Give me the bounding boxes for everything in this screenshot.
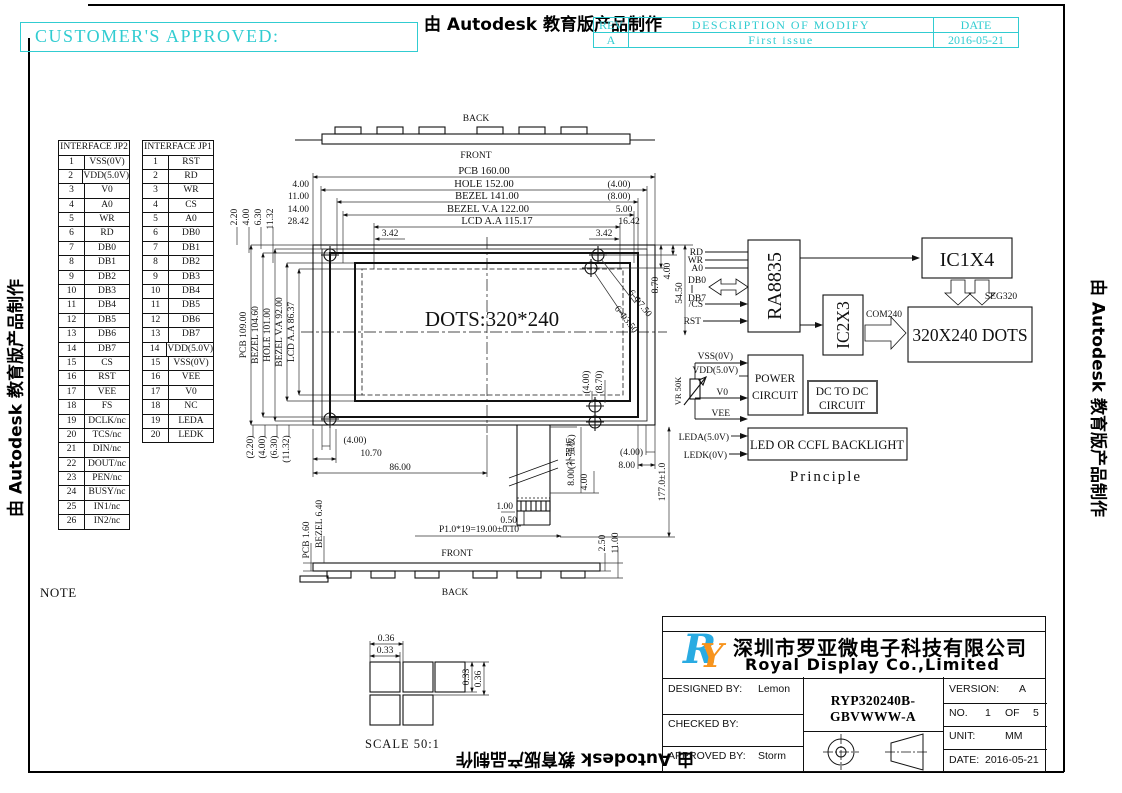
pin-name: DB1 bbox=[169, 242, 213, 255]
dim-label: (4.00) bbox=[608, 179, 631, 190]
pin-row: 19 DCLK/nc bbox=[59, 415, 129, 429]
table-title: INTERFACE JP1 bbox=[143, 141, 213, 156]
dim-label: 11.00 bbox=[611, 532, 621, 553]
dim-label: 54.50 bbox=[675, 282, 685, 304]
designed-by-label: DESIGNED BY: bbox=[668, 683, 742, 695]
projection-cone-icon bbox=[885, 734, 929, 770]
dim-label: 0.36 bbox=[378, 634, 395, 644]
sheet-of-label: OF bbox=[1005, 707, 1020, 719]
pin-row: 4 A0 bbox=[59, 199, 129, 213]
pin-number: 4 bbox=[59, 199, 85, 212]
divider bbox=[943, 726, 1047, 727]
pin-name: IN1/nc bbox=[85, 501, 129, 514]
front-label: FRONT bbox=[441, 549, 472, 559]
pin-row: 13 DB7 bbox=[143, 328, 213, 342]
dim-label: (4.00) bbox=[257, 436, 268, 459]
pin-number: 6 bbox=[143, 227, 169, 240]
dim-label: (2.20) bbox=[245, 436, 256, 459]
power-signal-label: VSS(0V) bbox=[698, 351, 733, 362]
pin-row: 18 FS bbox=[59, 400, 129, 414]
hole-callout-leaders bbox=[594, 259, 635, 315]
pin-row: 5 WR bbox=[59, 213, 129, 227]
sheet-no-value: 1 bbox=[985, 707, 991, 719]
pin-name: TCS/nc bbox=[85, 429, 129, 442]
divider bbox=[943, 677, 944, 771]
dim-label: (4.00) bbox=[581, 371, 592, 394]
pin-row: 5 A0 bbox=[143, 213, 213, 227]
pin-row: 1 RST bbox=[143, 156, 213, 170]
pin-number: 16 bbox=[143, 371, 169, 384]
divider bbox=[663, 714, 803, 715]
pin-row: 17 VEE bbox=[59, 386, 129, 400]
dim-label: 10.70 bbox=[360, 449, 382, 459]
dim-label: BEZEL 104.60 bbox=[251, 306, 261, 364]
autodesk-credit-right: 由 Autodesk 教育版产品制作 bbox=[1088, 279, 1113, 517]
backlight-label: LED OR CCFL BACKLIGHT bbox=[750, 438, 904, 452]
pin-number: 19 bbox=[59, 415, 85, 428]
pin-name: DB7 bbox=[85, 343, 129, 356]
pin-name: VEE bbox=[85, 386, 129, 399]
power-signal-label: VDD(5.0V) bbox=[692, 365, 738, 376]
pin-number: 2 bbox=[143, 170, 169, 183]
pin-name: DB3 bbox=[85, 285, 129, 298]
top-profile-view bbox=[295, 127, 655, 144]
dim-label: 16.42 bbox=[618, 217, 640, 227]
version-value: A bbox=[1019, 683, 1026, 695]
pin-name: RD bbox=[169, 170, 213, 183]
pin-name: FS bbox=[85, 400, 129, 413]
backlight-signal-label: LEDK(0V) bbox=[684, 450, 727, 461]
date-value: 2016-05-21 bbox=[934, 33, 1018, 47]
sheet-of-value: 5 bbox=[1033, 707, 1039, 719]
pin-name: DB3 bbox=[169, 271, 213, 284]
pin-name: DB1 bbox=[85, 256, 129, 269]
dim-label: BEZEL 6.40 bbox=[315, 500, 325, 548]
pin-name: VDD(5.0V) bbox=[83, 170, 129, 183]
dim-label: 2.50 bbox=[598, 534, 608, 551]
pin-name: CS bbox=[85, 357, 129, 370]
bottom-left-offsets bbox=[253, 425, 289, 437]
mounting-holes bbox=[321, 246, 607, 431]
pin-name: VDD(5.0V) bbox=[167, 343, 213, 356]
pin-name: V0 bbox=[85, 184, 129, 197]
pin-number: 7 bbox=[59, 242, 85, 255]
dim-label: 3.42 bbox=[596, 229, 613, 239]
pin-row: 10 DB3 bbox=[59, 285, 129, 299]
scale-caption: SCALE 50:1 bbox=[365, 737, 440, 751]
notes-lines bbox=[40, 629, 77, 672]
pin-name: VEE bbox=[169, 371, 213, 384]
pin-row: 2 RD bbox=[143, 170, 213, 184]
power-circuit-label: POWER bbox=[755, 373, 796, 385]
company-logo: R Y bbox=[683, 632, 731, 676]
pin-name: DB0 bbox=[85, 242, 129, 255]
title-block: R Y 深圳市罗亚微电子科技有限公司 Royal Display Co.,Lim… bbox=[662, 616, 1046, 772]
engineering-drawing-sheet: CUSTOMER'S APPROVED: 由 Autodesk 教育版产品制作 … bbox=[0, 0, 1122, 793]
pin-name: DB5 bbox=[169, 299, 213, 312]
date-header: DATE bbox=[934, 18, 1018, 32]
designed-by-value: Lemon bbox=[758, 683, 790, 695]
divider bbox=[663, 746, 803, 747]
dim-label: (8.00) bbox=[608, 191, 631, 202]
pin-name: IN2/nc bbox=[85, 515, 129, 528]
dim-label: 86.00 bbox=[389, 463, 411, 473]
pin-row: 6 DB0 bbox=[143, 227, 213, 241]
pin-number: 18 bbox=[143, 400, 169, 413]
backlight-signal-label: LEDA(5.0V) bbox=[679, 432, 729, 443]
pin-name: WR bbox=[85, 213, 129, 226]
pin-number: 10 bbox=[59, 285, 85, 298]
dim-label: LCD A.A 115.17 bbox=[461, 216, 532, 227]
pin-number: 25 bbox=[59, 501, 85, 514]
interface-jp2-rows: 1 VSS(0V) 2 VDD(5.0V) 3 V0 4 A0 5 WR 6 R… bbox=[59, 156, 129, 529]
sheet-no-label: NO. bbox=[949, 707, 968, 719]
dim-label: 4.00 bbox=[242, 208, 252, 225]
back-label: BACK bbox=[463, 114, 490, 124]
dim-label: 4.00 bbox=[292, 180, 309, 190]
divider bbox=[943, 749, 1047, 750]
dim-label: 4.00 bbox=[663, 262, 673, 279]
dim-label: 0.33 bbox=[462, 668, 472, 685]
pin-number: 2 bbox=[59, 170, 83, 183]
dcdc-label: CIRCUIT bbox=[819, 400, 865, 412]
dim-label: PCB 109.00 bbox=[239, 312, 249, 359]
dim-label: 2.20 bbox=[230, 208, 240, 225]
pin-number: 14 bbox=[59, 343, 85, 356]
pin-row: 4 CS bbox=[143, 199, 213, 213]
checked-by-label: CHECKED BY: bbox=[668, 718, 739, 730]
pin-row: 24 BUSY/nc bbox=[59, 486, 129, 500]
pin-name: A0 bbox=[169, 213, 213, 226]
pin-name: DB2 bbox=[169, 256, 213, 269]
autodesk-credit-left: 由 Autodesk 教育版产品制作 bbox=[2, 279, 27, 517]
pin-name: DB4 bbox=[169, 285, 213, 298]
pin-number: 15 bbox=[59, 357, 85, 370]
pin-name: LEDA bbox=[169, 415, 213, 428]
pin-row: 7 DB1 bbox=[143, 242, 213, 256]
dim-label: 3.42 bbox=[382, 229, 399, 239]
pin-number: 3 bbox=[143, 184, 169, 197]
pin-row: 10 DB4 bbox=[143, 285, 213, 299]
pin-number: 4 bbox=[143, 199, 169, 212]
pin-row: 3 V0 bbox=[59, 184, 129, 198]
frame-top bbox=[88, 4, 1063, 6]
signal-label: /CS bbox=[689, 300, 703, 310]
pin-number: 20 bbox=[59, 429, 85, 442]
pin-number: 1 bbox=[59, 156, 85, 169]
pin-row: 16 RST bbox=[59, 371, 129, 385]
dim-label: 8.70 bbox=[651, 276, 661, 293]
pin-row: 11 DB5 bbox=[143, 299, 213, 313]
logo-letter-y: Y bbox=[700, 636, 724, 675]
pin-number: 19 bbox=[143, 415, 169, 428]
pin-name: BUSY/nc bbox=[85, 486, 129, 499]
pin-name: NC bbox=[169, 400, 213, 413]
pin-row: 9 DB2 bbox=[59, 271, 129, 285]
signal-label: DB0 bbox=[688, 276, 706, 286]
dim-label: LCD A.A 86.37 bbox=[287, 302, 297, 362]
dim-label: (4.00) bbox=[620, 447, 643, 458]
dim-label: 11.32 bbox=[266, 208, 276, 229]
mounting-hole bbox=[586, 413, 604, 431]
pitch-label: P1.0*19=19.00±0.10 bbox=[439, 525, 519, 535]
pin-row: 1 VSS(0V) bbox=[59, 156, 129, 170]
interface-jp2-table: INTERFACE JP2 1 VSS(0V) 2 VDD(5.0V) 3 V0… bbox=[58, 140, 130, 530]
pin-number: 17 bbox=[143, 386, 169, 399]
dim-label: 4.00 bbox=[580, 473, 590, 490]
pin-name: DB6 bbox=[169, 314, 213, 327]
pin-number: 14 bbox=[143, 343, 167, 356]
revision-header-row: REV DESCRIPTION OF MODIFY DATE bbox=[594, 18, 1018, 33]
description-header: DESCRIPTION OF MODIFY bbox=[629, 18, 934, 32]
dots-resolution-label: DOTS:320*240 bbox=[425, 307, 559, 331]
bottom-profile-view bbox=[300, 563, 600, 582]
pin-row: 8 DB2 bbox=[143, 256, 213, 270]
pin-row: 12 DB5 bbox=[59, 314, 129, 328]
pin-number: 8 bbox=[59, 256, 85, 269]
pin-row: 18 NC bbox=[143, 400, 213, 414]
pin-name: DCLK/nc bbox=[85, 415, 129, 428]
pin-number: 5 bbox=[143, 213, 169, 226]
table-title: INTERFACE JP2 bbox=[59, 141, 129, 156]
data-bus-arrow bbox=[709, 279, 748, 295]
pin-name: WR bbox=[169, 184, 213, 197]
version-label: VERSION: bbox=[949, 683, 999, 695]
dim-label: 177.0±1.0 bbox=[658, 463, 668, 502]
pin-number: 3 bbox=[59, 184, 85, 197]
com-driver-label: IC2X3 bbox=[833, 301, 853, 349]
principle-caption: Principle bbox=[790, 469, 862, 485]
front-view-outline bbox=[301, 237, 667, 433]
dim-label: PCB 160.00 bbox=[458, 166, 509, 177]
power-circuit-box bbox=[748, 355, 803, 415]
pin-name: RST bbox=[169, 156, 213, 169]
dim-label: 0.33 bbox=[377, 646, 394, 656]
dim-label: HOLE 101.00 bbox=[263, 308, 273, 362]
pin-number: 23 bbox=[59, 472, 85, 485]
rev-header: REV bbox=[594, 18, 629, 32]
projection-circle-icon bbox=[823, 734, 859, 770]
projection-symbols bbox=[803, 731, 943, 773]
dim-label: (8.70) bbox=[594, 371, 605, 394]
pin-name: DOUT/nc bbox=[85, 458, 129, 471]
pin-name: DB0 bbox=[169, 227, 213, 240]
pin-number: 21 bbox=[59, 443, 85, 456]
pin-row: 26 IN2/nc bbox=[59, 515, 129, 528]
pin-name: DB7 bbox=[169, 328, 213, 341]
hole-callout: 6-Φ3.50 bbox=[612, 304, 639, 335]
signal-label: A0 bbox=[691, 264, 703, 274]
pin-row: 14 DB7 bbox=[59, 343, 129, 357]
pin-name: DB6 bbox=[85, 328, 129, 341]
vr-label: VR 50K bbox=[673, 376, 683, 405]
dim-label: BEZEL 141.00 bbox=[455, 191, 519, 202]
pin-name: RST bbox=[85, 371, 129, 384]
pin-row: 7 DB0 bbox=[59, 242, 129, 256]
ffc-tail bbox=[509, 425, 558, 525]
pin-name: VSS(0V) bbox=[85, 156, 129, 169]
pin-number: 9 bbox=[143, 271, 169, 284]
seg-bus-label: SEG320 bbox=[985, 292, 1017, 302]
pin-number: 11 bbox=[143, 299, 169, 312]
pin-row: 9 DB3 bbox=[143, 271, 213, 285]
pin-number: 12 bbox=[59, 314, 85, 327]
dim-label: (4.00) bbox=[344, 435, 367, 446]
divider bbox=[943, 703, 1047, 704]
panel-label: 320X240 DOTS bbox=[912, 325, 1027, 345]
dim-label: 8.00(补强板) bbox=[565, 434, 577, 485]
dim-label: (11.32) bbox=[281, 435, 292, 462]
pin-row: 11 DB4 bbox=[59, 299, 129, 313]
dim-label: 28.42 bbox=[288, 217, 310, 227]
pin-row: 17 V0 bbox=[143, 386, 213, 400]
com-bus-label: COM240 bbox=[866, 310, 902, 320]
pin-row: 14 VDD(5.0V) bbox=[143, 343, 213, 357]
pin-row: 15 CS bbox=[59, 357, 129, 371]
controller-label: RA8835 bbox=[764, 252, 786, 320]
dim-label: 14.00 bbox=[288, 205, 310, 215]
customer-approved-box: CUSTOMER'S APPROVED: bbox=[20, 22, 418, 52]
mounting-hole bbox=[586, 397, 604, 415]
bottom-right-dimensions bbox=[638, 425, 655, 469]
pin-name: DIN/nc bbox=[85, 443, 129, 456]
rev-value: A bbox=[594, 33, 629, 47]
dot-pitch-view bbox=[370, 662, 465, 725]
customer-approved-label: CUSTOMER'S APPROVED: bbox=[35, 26, 279, 46]
pin-name: DB4 bbox=[85, 299, 129, 312]
dim-label: (6.30) bbox=[269, 436, 280, 459]
pin-row: 22 DOUT/nc bbox=[59, 458, 129, 472]
company-name-en: Royal Display Co.,Limited bbox=[745, 655, 1000, 674]
pin-row: 23 PEN/nc bbox=[59, 472, 129, 486]
power-signal-label: V0 bbox=[716, 388, 728, 398]
pin-row: 19 LEDA bbox=[143, 415, 213, 429]
pin-name: A0 bbox=[85, 199, 129, 212]
pin-number: 11 bbox=[59, 299, 85, 312]
back-label: BACK bbox=[442, 588, 469, 598]
revision-table: REV DESCRIPTION OF MODIFY DATE A First i… bbox=[593, 17, 1019, 48]
pin-row: 3 WR bbox=[143, 184, 213, 198]
pin-name: VSS(0V) bbox=[169, 357, 213, 370]
pin-number: 10 bbox=[143, 285, 169, 298]
dim-label: 11.00 bbox=[288, 192, 309, 202]
pin-name: DB2 bbox=[85, 271, 129, 284]
pin-number: 5 bbox=[59, 213, 85, 226]
dim-label: BEZEL V.A 122.00 bbox=[447, 204, 529, 215]
pin-name: CS bbox=[169, 199, 213, 212]
pin-row: 6 RD bbox=[59, 227, 129, 241]
pin-number: 12 bbox=[143, 314, 169, 327]
pin-number: 13 bbox=[59, 328, 85, 341]
interface-jp1-table: INTERFACE JP1 1 RST 2 RD 3 WR 4 CS 5 A0 … bbox=[142, 140, 214, 443]
unit-value: MM bbox=[1005, 730, 1023, 742]
dim-label: 8.00 bbox=[618, 461, 635, 471]
pin-row: 8 DB1 bbox=[59, 256, 129, 270]
pin-number: 17 bbox=[59, 386, 85, 399]
model-number: RYP320240B-GBVWWW-A bbox=[803, 693, 943, 725]
dim-label: BEZEL V.A 92.00 bbox=[275, 297, 285, 367]
pin-number: 9 bbox=[59, 271, 85, 284]
pin-number: 20 bbox=[143, 429, 169, 442]
pin-name: V0 bbox=[169, 386, 213, 399]
dim-label: 0.36 bbox=[474, 670, 484, 687]
notes-title: NOTE bbox=[40, 586, 77, 600]
approved-by-label: APPROVED BY: bbox=[668, 750, 746, 762]
power-signal-label: VEE bbox=[712, 409, 731, 419]
pin-row: 12 DB6 bbox=[143, 314, 213, 328]
seg-driver-label: IC1X4 bbox=[940, 249, 994, 271]
pin-row: 15 VSS(0V) bbox=[143, 357, 213, 371]
pin-row: 13 DB6 bbox=[59, 328, 129, 342]
pin-number: 24 bbox=[59, 486, 85, 499]
dcdc-label: DC TO DC bbox=[816, 386, 869, 398]
pin-number: 16 bbox=[59, 371, 85, 384]
pin-number: 13 bbox=[143, 328, 169, 341]
interface-jp1-rows: 1 RST 2 RD 3 WR 4 CS 5 A0 6 DB0 7 DB1 8 bbox=[143, 156, 213, 443]
notes-block: NOTE bbox=[40, 557, 77, 701]
pin-number: 22 bbox=[59, 458, 85, 471]
pin-row: 25 IN1/nc bbox=[59, 501, 129, 515]
signal-label: RST bbox=[684, 317, 702, 327]
unit-label: UNIT: bbox=[949, 730, 975, 742]
pin-name: DB5 bbox=[85, 314, 129, 327]
pin-number: 15 bbox=[143, 357, 169, 370]
dim-label: 1.00 bbox=[496, 502, 513, 512]
dim-label: 5.00 bbox=[616, 205, 633, 215]
dim-label: PCB 1.60 bbox=[302, 521, 312, 558]
pin-row: 20 LEDK bbox=[143, 429, 213, 442]
pin-number: 7 bbox=[143, 242, 169, 255]
pin-number: 8 bbox=[143, 256, 169, 269]
dim-label: HOLE 152.00 bbox=[454, 179, 514, 190]
front-label: FRONT bbox=[460, 151, 491, 161]
pin-row: 2 VDD(5.0V) bbox=[59, 170, 129, 184]
pin-row: 16 VEE bbox=[143, 371, 213, 385]
company-header: R Y 深圳市罗亚微电子科技有限公司 Royal Display Co.,Lim… bbox=[663, 631, 1045, 679]
pin-name: PEN/nc bbox=[85, 472, 129, 485]
pin-name: RD bbox=[85, 227, 129, 240]
pin-name: LEDK bbox=[169, 429, 213, 442]
pin-row: 21 DIN/nc bbox=[59, 443, 129, 457]
frame-left bbox=[28, 38, 30, 772]
pin-number: 18 bbox=[59, 400, 85, 413]
pin-number: 26 bbox=[59, 515, 85, 528]
pin-row: 20 TCS/nc bbox=[59, 429, 129, 443]
pin-number: 6 bbox=[59, 227, 85, 240]
pin-number: 1 bbox=[143, 156, 169, 169]
date-label: DATE: bbox=[949, 754, 979, 766]
power-circuit-label: CIRCUIT bbox=[752, 390, 798, 402]
description-value: First issue bbox=[629, 33, 934, 47]
dim-label: 6.30 bbox=[254, 208, 264, 225]
approved-by-value: Storm bbox=[758, 750, 786, 762]
revision-row: A First issue 2016-05-21 bbox=[594, 33, 1018, 47]
date-value: 2016-05-21 bbox=[985, 754, 1039, 766]
